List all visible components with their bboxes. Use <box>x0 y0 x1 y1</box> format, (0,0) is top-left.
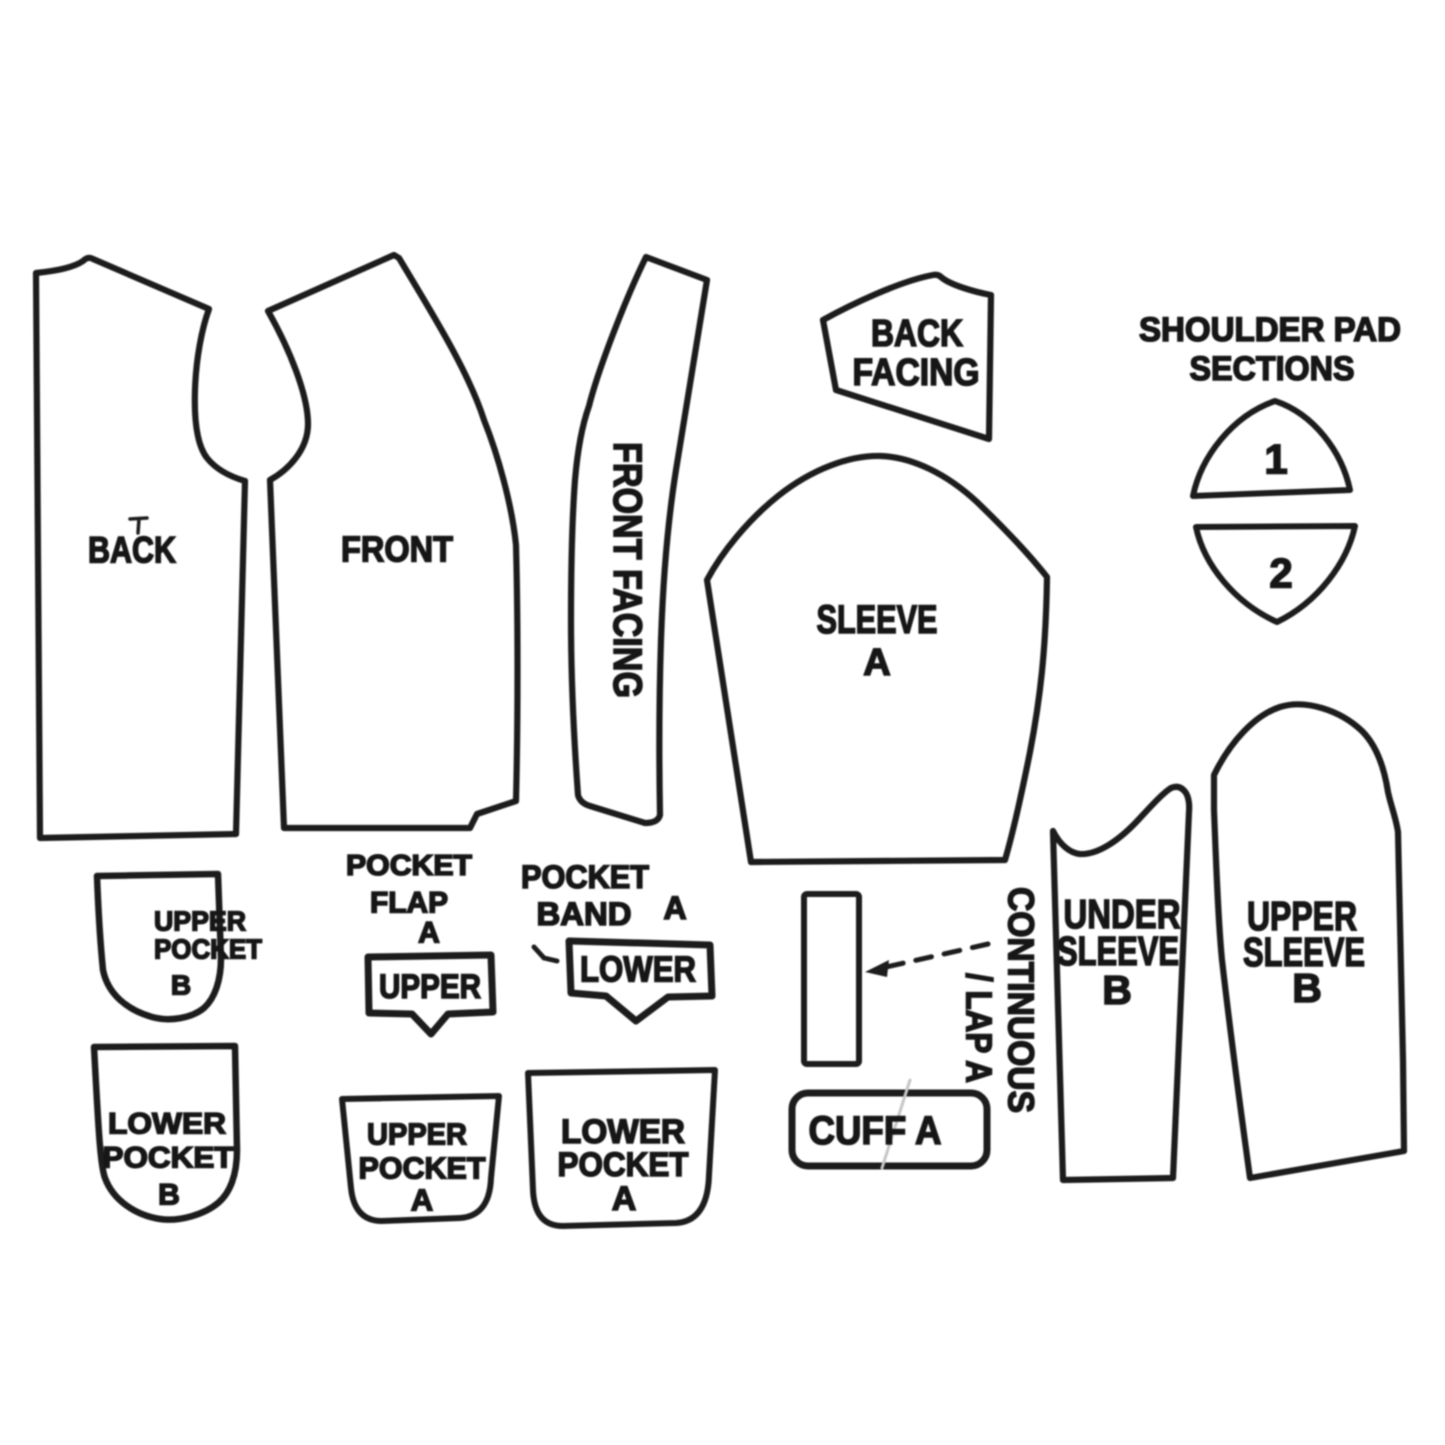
svg-text:BACK: BACK <box>871 313 963 355</box>
svg-text:A: A <box>863 642 890 684</box>
svg-text:FLAP: FLAP <box>370 887 448 920</box>
svg-text:POCKET: POCKET <box>103 1142 234 1175</box>
svg-text:POCKET: POCKET <box>359 1151 486 1186</box>
svg-text:SECTIONS: SECTIONS <box>1190 350 1355 388</box>
svg-text:A: A <box>663 890 686 926</box>
svg-text:FRONT FACING: FRONT FACING <box>605 442 649 698</box>
svg-text:SHOULDER PAD: SHOULDER PAD <box>1139 311 1401 349</box>
svg-text:CUFF A: CUFF A <box>809 1109 942 1153</box>
svg-text:A: A <box>612 1180 637 1218</box>
svg-text:LOWER: LOWER <box>580 949 696 990</box>
svg-text:POCKET: POCKET <box>346 850 472 882</box>
svg-text:A: A <box>418 917 440 950</box>
svg-text:/ LAP A: / LAP A <box>959 973 1000 1083</box>
svg-text:SLEEVE: SLEEVE <box>817 598 938 642</box>
svg-text:UPPER: UPPER <box>154 906 246 937</box>
svg-text:POCKET: POCKET <box>558 1146 689 1184</box>
svg-text:2: 2 <box>1269 550 1292 597</box>
svg-text:POCKET: POCKET <box>521 859 649 895</box>
svg-text:B: B <box>1292 965 1322 1011</box>
svg-text:1: 1 <box>1264 436 1287 483</box>
svg-text:B: B <box>1102 967 1132 1013</box>
svg-text:UPPER: UPPER <box>367 1117 467 1152</box>
svg-text:CONTINUOUS: CONTINUOUS <box>1001 887 1042 1113</box>
svg-text:LOWER: LOWER <box>108 1108 226 1141</box>
svg-text:UPPER: UPPER <box>379 968 481 1006</box>
svg-text:POCKET: POCKET <box>154 934 262 965</box>
svg-text:B: B <box>171 970 191 1001</box>
svg-text:FRONT: FRONT <box>341 529 453 570</box>
svg-text:BAND: BAND <box>537 896 632 932</box>
svg-text:FACING: FACING <box>853 352 980 394</box>
svg-text:A: A <box>411 1183 433 1218</box>
svg-text:B: B <box>158 1179 180 1212</box>
svg-text:BACK: BACK <box>88 530 176 571</box>
